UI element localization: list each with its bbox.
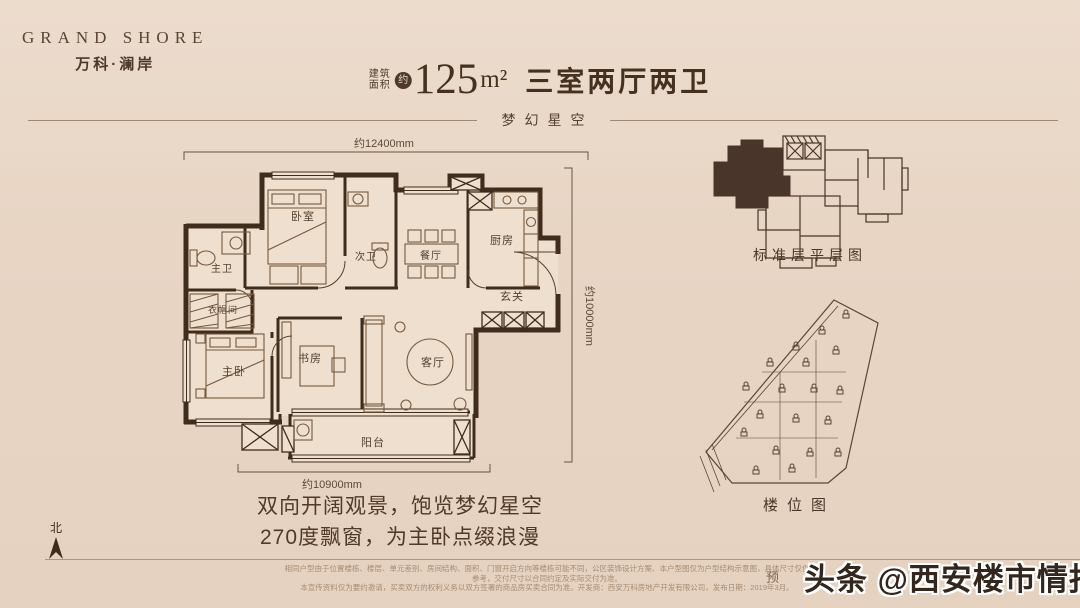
room-label-second-bath: 次卫 <box>355 250 377 263</box>
room-label-kitchen: 厨房 <box>490 234 514 247</box>
floorplan-poster: { "brand": { "logo_en": "GRAND SHORE", "… <box>0 0 1080 608</box>
room-label-living: 客厅 <box>421 355 445 369</box>
room-label-balcony: 阳台 <box>361 435 385 449</box>
dimension-line-bottom <box>238 464 490 472</box>
room-label-study: 书房 <box>298 352 322 365</box>
tagline-line1: 双向开阔观景，饱览梦幻星空 <box>212 491 588 522</box>
watermark: 头条 @西安楼市情报 <box>804 554 1080 599</box>
watermark-handle: @西安楼市情报 <box>878 562 1080 597</box>
disclaimer-line2: 本宣传资料仅为要约邀请，买卖双方的权利义务以双方签署的商品房买卖合同为准。开发商… <box>283 583 811 593</box>
room-label-master-bedroom: 主卧 <box>222 365 246 378</box>
highlighted-unit <box>714 140 790 208</box>
dimension-line-top <box>184 152 588 160</box>
floor-plate-caption: 标准层平层图 <box>753 247 867 263</box>
disclaimer-partial-text: 预 <box>766 567 779 586</box>
site-plan-caption: 楼位图 <box>763 497 835 514</box>
dimension-label-top: 约12400mm <box>354 137 414 150</box>
tagline: 双向开阔观景，饱览梦幻星空 270度飘窗，为主卧点缀浪漫 <box>212 491 588 553</box>
room-label-cloakroom: 衣帽间 <box>208 304 238 315</box>
dimension-label-bottom: 约10900mm <box>302 478 362 491</box>
room-label-foyer: 玄关 <box>500 289 524 303</box>
north-arrow-icon <box>49 537 63 559</box>
dimension-line-right <box>564 168 572 462</box>
site-plan-outline <box>700 300 878 492</box>
north-label: 北 <box>50 521 62 535</box>
room-label-master-bath: 主卫 <box>211 263 233 275</box>
room-label-bedroom: 卧室 <box>291 209 315 223</box>
dimension-label-right: 约10000mm <box>583 286 596 346</box>
tagline-line2: 270度飘窗，为主卧点缀浪漫 <box>212 522 588 553</box>
north-indicator: 北 <box>49 521 63 559</box>
disclaimer-line1: 相同户型由于位置楼栋、楼层、单元差别、房间结构、面积、门窗开启方向等楼栋可能不同… <box>283 564 811 583</box>
disclaimer: 相同户型由于位置楼栋、楼层、单元差别、房间结构、面积、门窗开启方向等楼栋可能不同… <box>283 564 811 593</box>
site-plan-panel: 楼位图 <box>700 300 878 514</box>
floor-plate-panel: 标准层平层图 <box>714 136 908 268</box>
room-label-dining: 餐厅 <box>420 249 442 262</box>
watermark-source: 头条 <box>804 562 878 597</box>
